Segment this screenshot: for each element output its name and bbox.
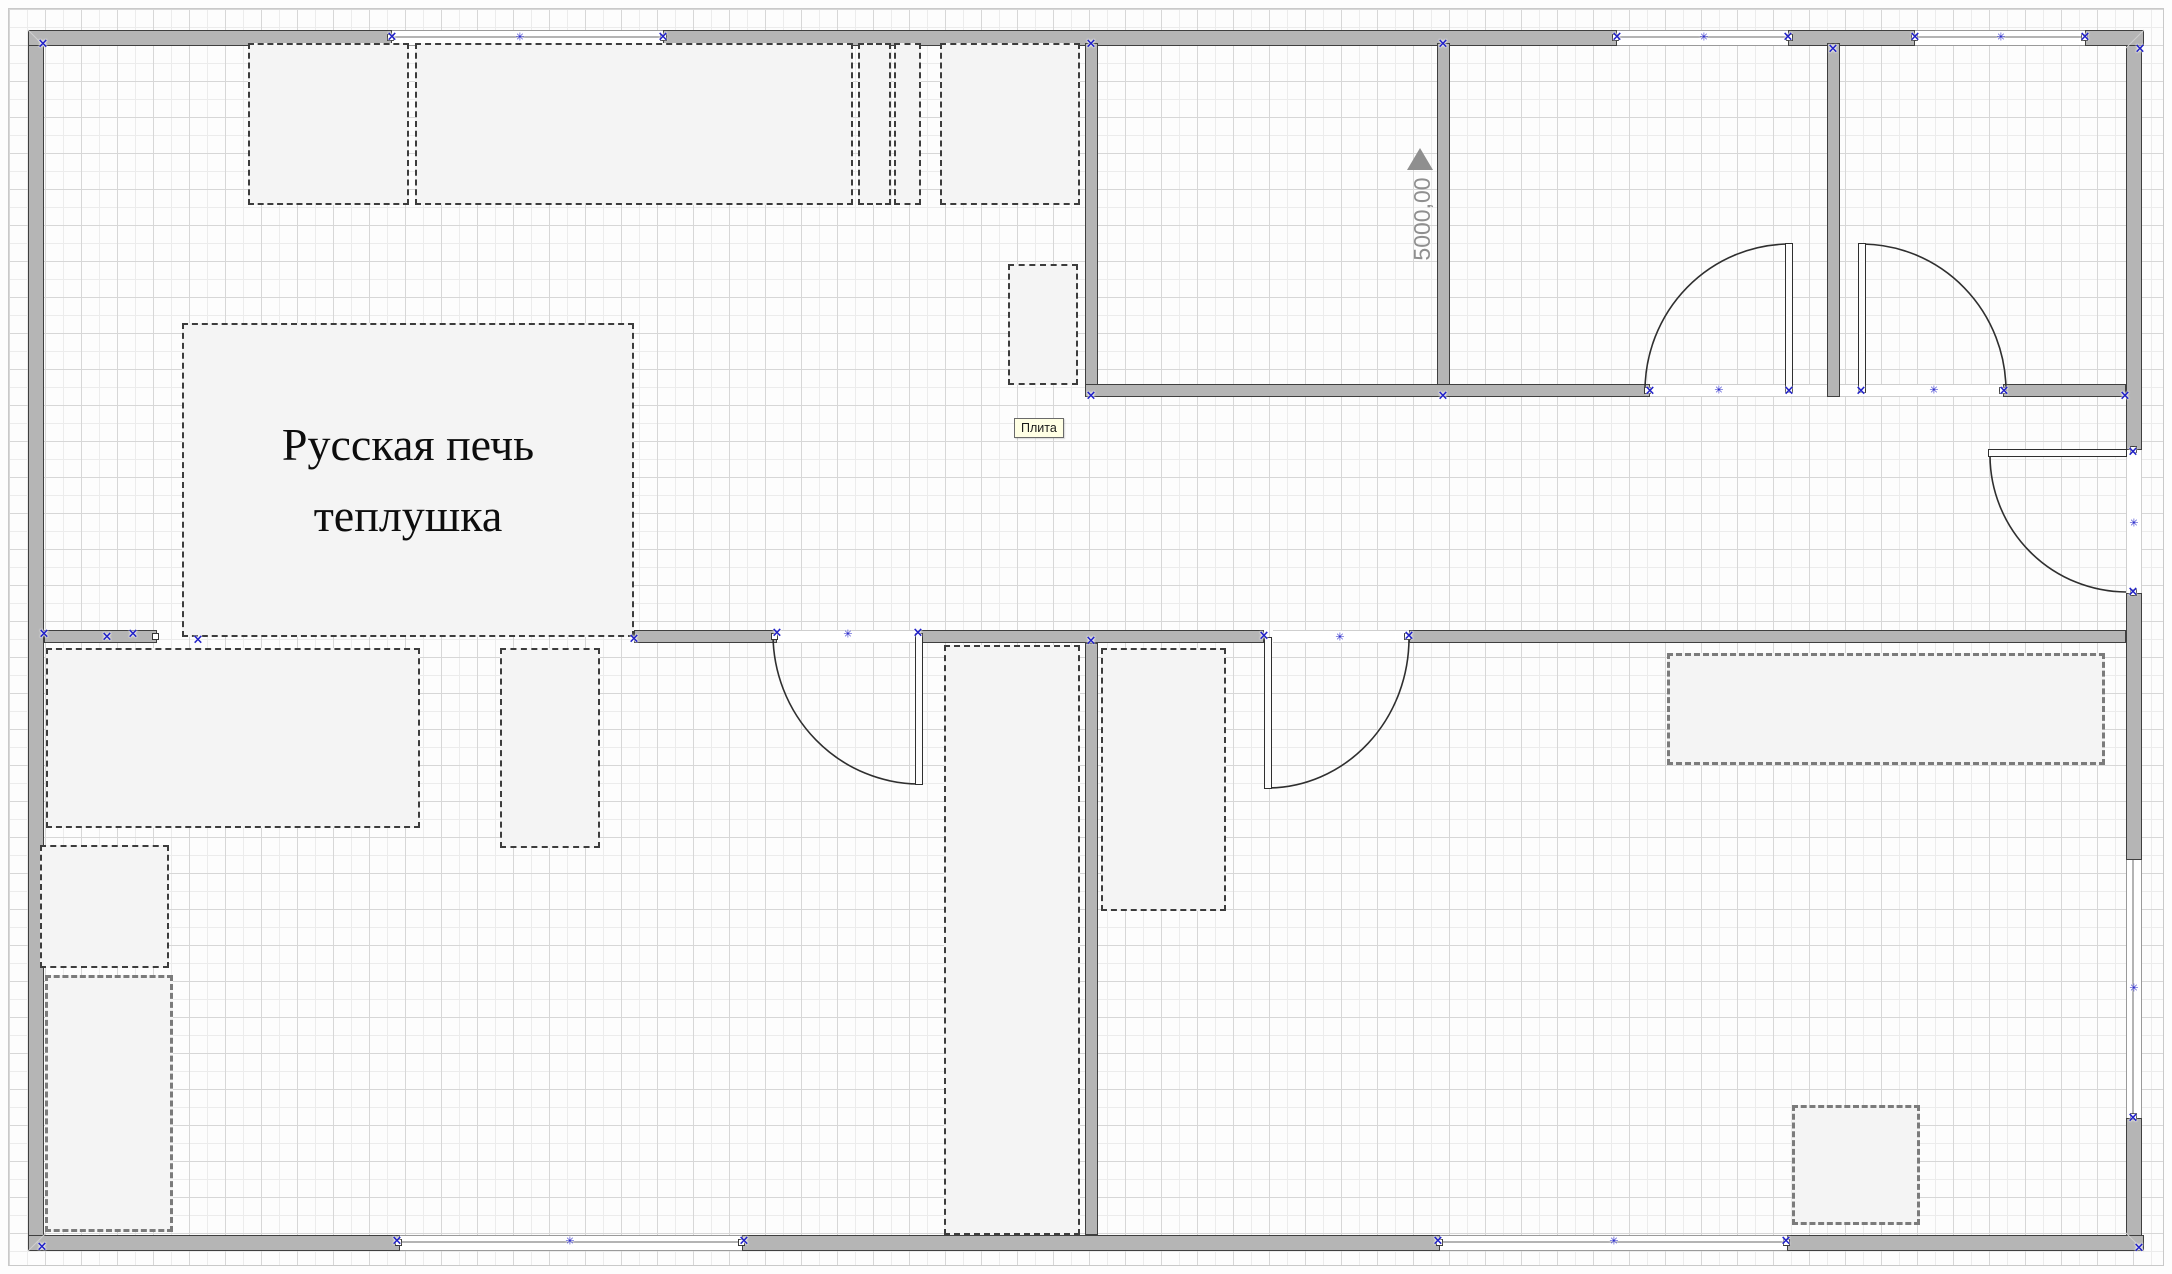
connection-point-star-icon: ✳ xyxy=(1699,32,1708,43)
connection-point-star-icon: ✳ xyxy=(1714,385,1723,396)
wall-lower-vertical[interactable] xyxy=(1085,643,1098,1235)
connection-point-x-icon: × xyxy=(1645,385,1656,398)
door-opening-top-left[interactable] xyxy=(1650,384,1827,397)
connection-point-x-icon: × xyxy=(1783,31,1794,44)
connection-point-x-icon: × xyxy=(1086,38,1097,51)
russian-stove-label-line2: теплушка xyxy=(314,480,503,551)
fixture-stove-plita[interactable] xyxy=(1008,264,1078,385)
wall-upper-horizontal-2[interactable] xyxy=(2003,384,2126,397)
connection-point-x-icon: × xyxy=(1828,43,1839,56)
connection-point-x-icon: × xyxy=(772,627,783,640)
fixture-center-right[interactable] xyxy=(1101,648,1226,911)
fixture-top-counter-5[interactable] xyxy=(940,43,1080,205)
connection-point-x-icon: × xyxy=(2135,43,2146,56)
connection-point-x-icon: × xyxy=(37,1241,48,1254)
connection-point-x-icon: × xyxy=(2080,31,2091,44)
connection-point-x-icon: × xyxy=(2128,446,2139,459)
wall-end-cap xyxy=(152,633,159,640)
fixture-left-counter-wide[interactable] xyxy=(46,648,420,828)
connection-point-x-icon: × xyxy=(39,628,50,641)
connection-point-x-icon: × xyxy=(128,628,139,641)
door-leaf-middle-left[interactable] xyxy=(915,633,923,785)
connection-point-x-icon: × xyxy=(1086,635,1097,648)
connection-point-star-icon: ✳ xyxy=(565,1236,574,1247)
fixture-top-counter-4[interactable] xyxy=(894,43,921,205)
wall-bottom-1[interactable] xyxy=(28,1235,400,1251)
connection-point-star-icon: ✳ xyxy=(515,32,524,43)
wall-upper-horizontal-1[interactable] xyxy=(1085,384,1650,397)
plita-tooltip-label[interactable]: Плита xyxy=(1014,418,1064,438)
door-leaf-top-right[interactable] xyxy=(1858,243,1866,393)
connection-point-x-icon: × xyxy=(739,1235,750,1248)
fixture-lower-left-2[interactable] xyxy=(45,975,173,1232)
connection-point-x-icon: × xyxy=(1259,630,1270,643)
connection-point-x-icon: × xyxy=(629,633,640,646)
wall-bottom-2[interactable] xyxy=(742,1235,1440,1251)
fixture-top-counter-1[interactable] xyxy=(248,43,409,205)
fixture-left-counter-tall[interactable] xyxy=(500,648,600,848)
connection-point-x-icon: × xyxy=(193,634,204,647)
connection-point-x-icon: × xyxy=(38,38,49,51)
fixture-top-counter-2[interactable] xyxy=(415,43,853,205)
connection-point-x-icon: × xyxy=(2128,1112,2139,1125)
fixture-bottom-right-square[interactable] xyxy=(1792,1105,1920,1225)
dimension-value[interactable]: 5000,00 xyxy=(1409,164,1439,274)
fixture-lower-left-1[interactable] xyxy=(40,845,169,968)
connection-point-x-icon: × xyxy=(913,627,924,640)
wall-middle-horizontal-2[interactable] xyxy=(634,630,777,643)
connection-point-star-icon: ✳ xyxy=(2129,518,2138,529)
wall-top-3[interactable] xyxy=(1788,30,1915,46)
connection-point-x-icon: × xyxy=(102,631,113,644)
connection-point-star-icon: ✳ xyxy=(1609,1236,1618,1247)
connection-point-x-icon: × xyxy=(1910,31,1921,44)
wall-bottom-3[interactable] xyxy=(1787,1235,2144,1251)
connection-point-x-icon: × xyxy=(2128,586,2139,599)
connection-point-star-icon: ✳ xyxy=(1335,632,1344,643)
door-leaf-middle-right[interactable] xyxy=(1264,637,1272,789)
connection-point-x-icon: × xyxy=(1784,385,1795,398)
connection-point-star-icon: ✳ xyxy=(1996,32,2005,43)
fixture-center-tall[interactable] xyxy=(944,645,1080,1235)
connection-point-x-icon: × xyxy=(1438,390,1449,403)
connection-point-x-icon: × xyxy=(1612,31,1623,44)
wall-kitchen-divider-vertical[interactable] xyxy=(1085,43,1098,395)
connection-point-x-icon: × xyxy=(1856,385,1867,398)
connection-point-star-icon: ✳ xyxy=(1929,385,1938,396)
wall-between-double-doors[interactable] xyxy=(1827,43,1840,397)
connection-point-x-icon: × xyxy=(1438,38,1449,51)
connection-point-x-icon: × xyxy=(387,31,398,44)
connection-point-x-icon: × xyxy=(658,31,669,44)
connection-point-star-icon: ✳ xyxy=(2129,983,2138,994)
wall-middle-horizontal-1[interactable] xyxy=(44,630,157,643)
russian-stove-label-line1: Русская печь xyxy=(282,409,534,480)
wall-right-lower[interactable] xyxy=(2126,1118,2142,1251)
fixture-right-counter[interactable] xyxy=(1667,653,2105,765)
connection-point-x-icon: × xyxy=(1086,390,1097,403)
wall-right-middle[interactable] xyxy=(2126,593,2142,860)
connection-point-x-icon: × xyxy=(1433,1235,1444,1248)
door-leaf-right-wall[interactable] xyxy=(1988,449,2127,457)
floor-plan-canvas: Русская печь теплушка Плита 5000,00 × × … xyxy=(0,0,2172,1274)
wall-middle-horizontal-4[interactable] xyxy=(1409,630,2126,643)
door-leaf-top-left[interactable] xyxy=(1785,243,1793,393)
connection-point-x-icon: × xyxy=(1999,385,2010,398)
connection-point-x-icon: × xyxy=(392,1235,403,1248)
connection-point-x-icon: × xyxy=(1404,630,1415,643)
russian-stove-label[interactable]: Русская печь теплушка xyxy=(182,323,634,637)
connection-point-x-icon: × xyxy=(2134,1242,2145,1255)
connection-point-star-icon: ✳ xyxy=(843,629,852,640)
connection-point-x-icon: × xyxy=(1781,1235,1792,1248)
connection-point-x-icon: × xyxy=(2120,390,2131,403)
wall-right-upper[interactable] xyxy=(2126,30,2142,450)
fixture-top-counter-3[interactable] xyxy=(858,43,891,205)
